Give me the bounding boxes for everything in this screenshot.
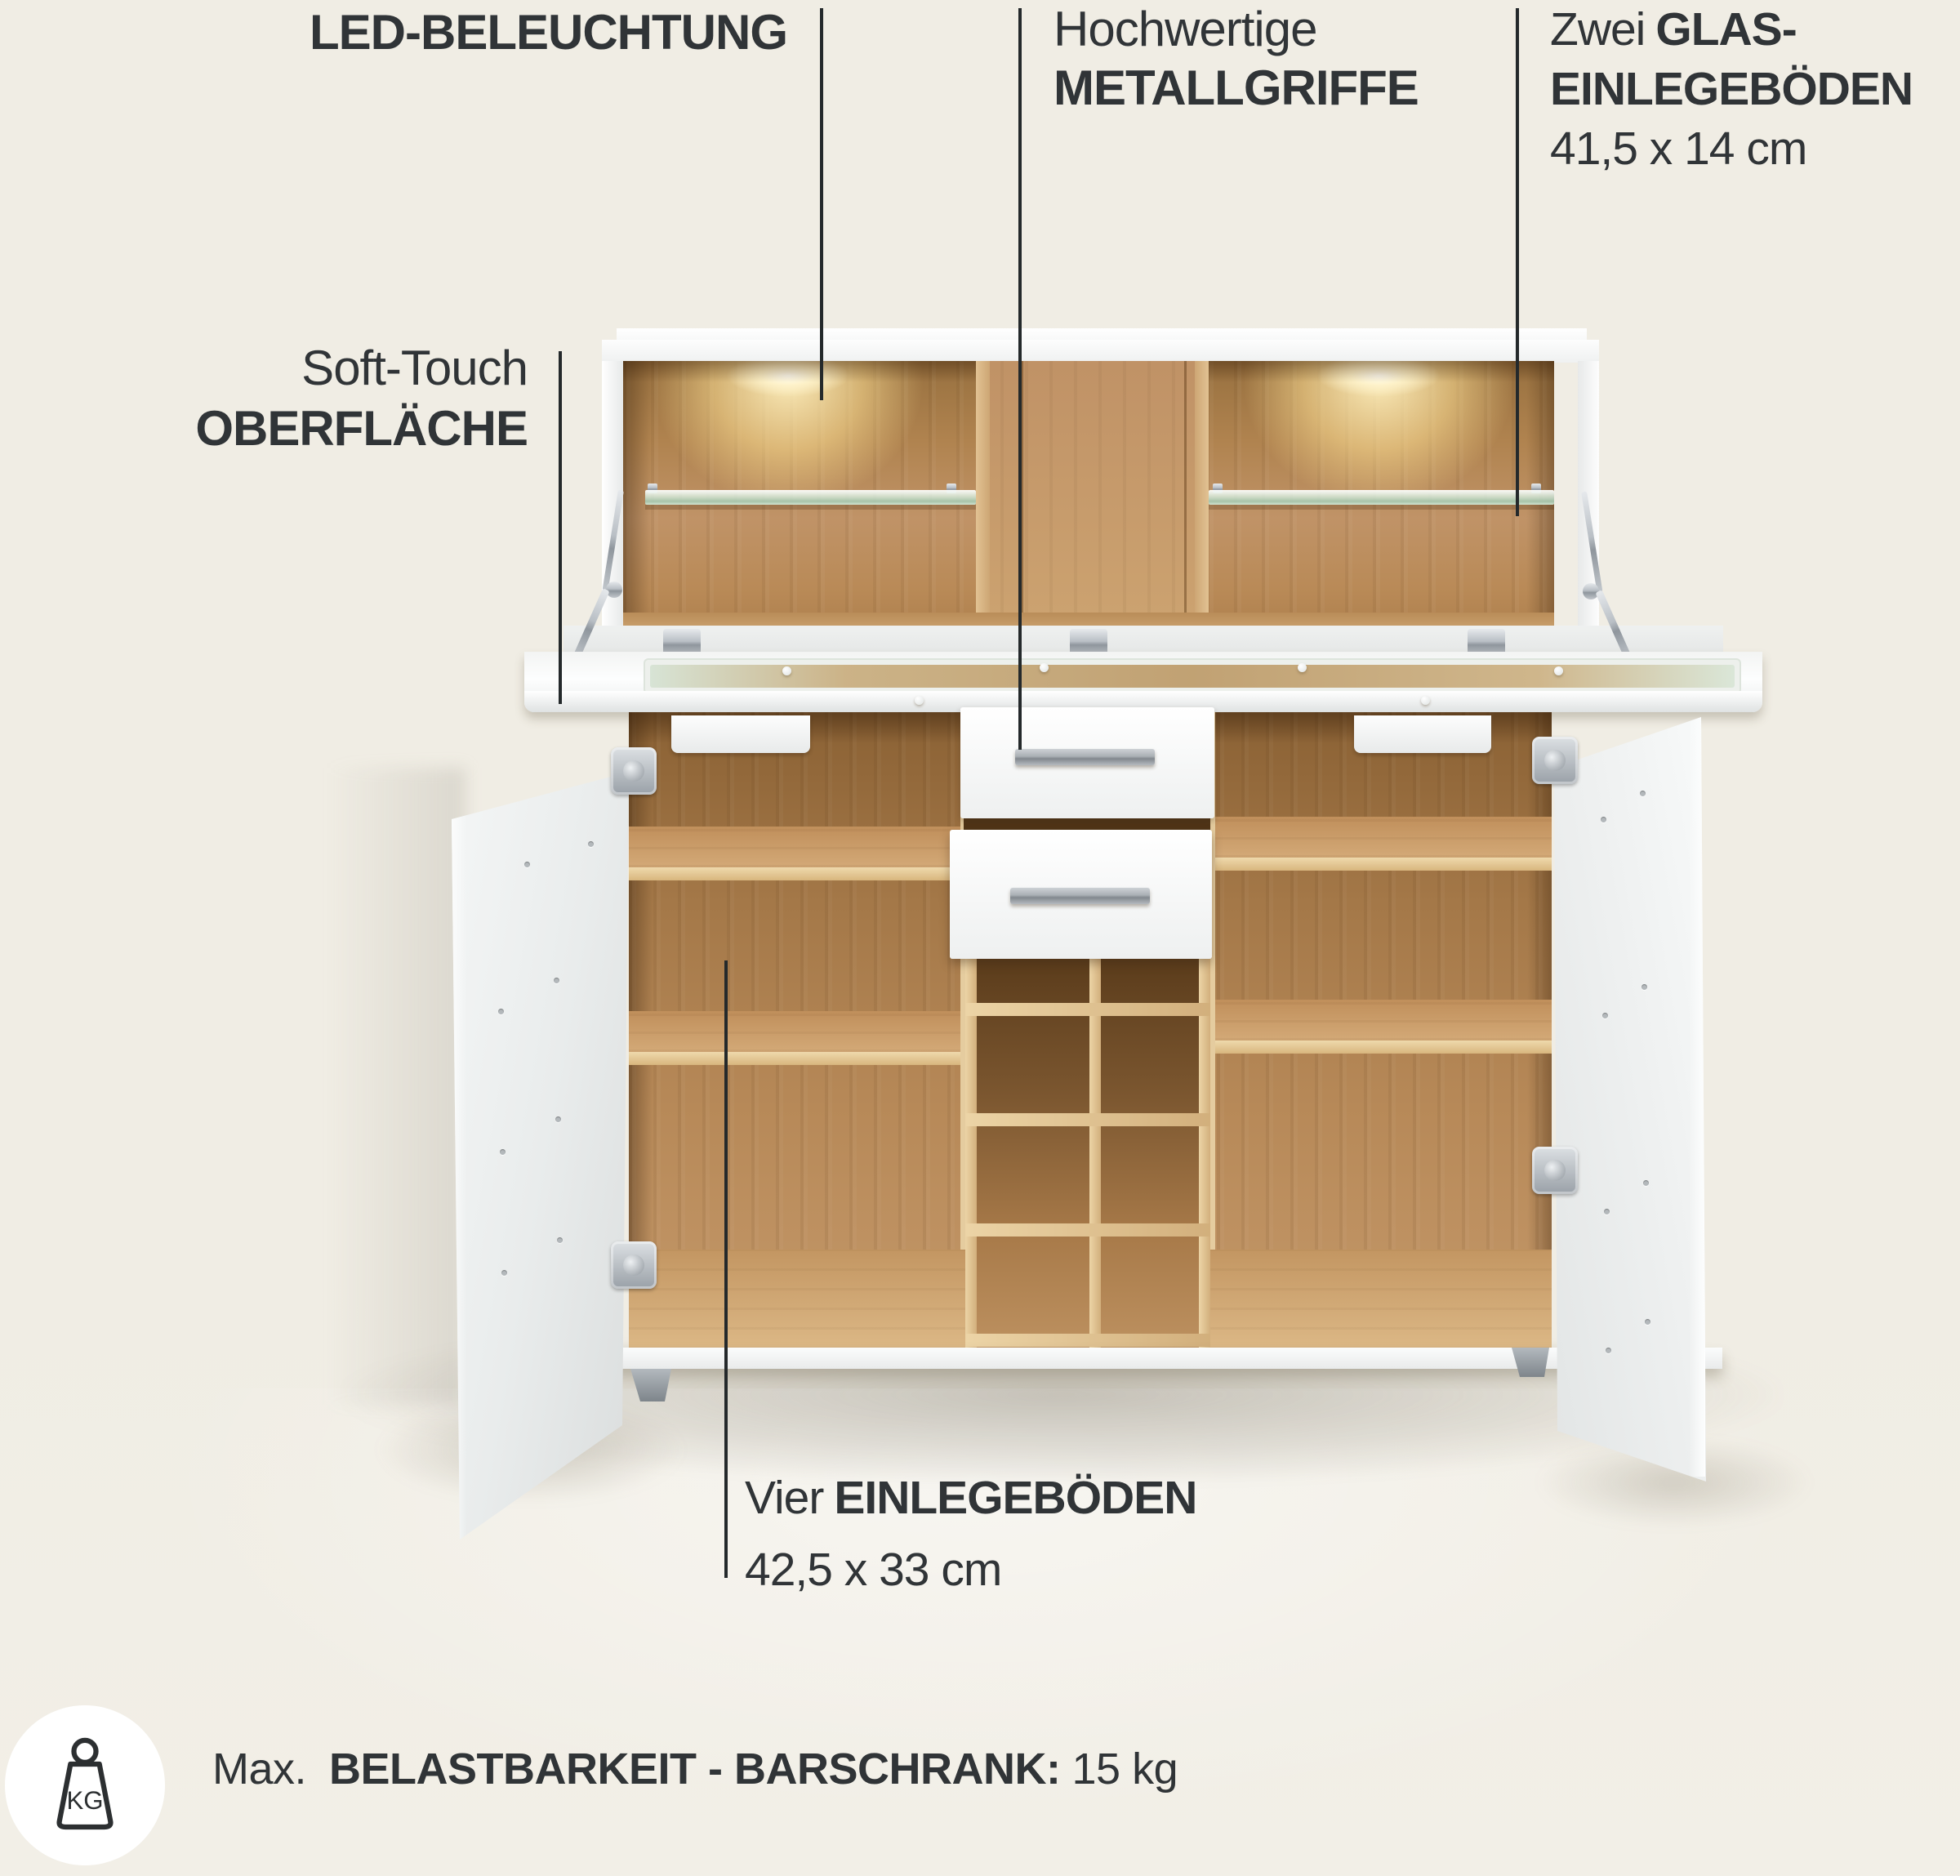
hinge-cup [623,1254,644,1276]
shelf-surface [1215,1000,1552,1040]
flap-knob [1554,666,1563,675]
screw-hole [501,1270,507,1276]
flap-knob [915,696,924,705]
callout-glass-label1: GLAS- [1655,3,1796,56]
hinge-cup [623,760,644,782]
hutch-center-partition [976,361,1209,647]
callout-handles-intro: Hochwertige [1053,0,1419,59]
callout-shelves-line1: VierEINLEGEBÖDEN [745,1462,1196,1534]
screw-hole [554,978,559,983]
callout-led-label: LED-BELEUCHTUNG [310,3,787,62]
drawer-handle [1015,749,1155,765]
screw-hole [1643,1180,1649,1186]
screw-hole [498,1009,504,1014]
callout-glass-line1: ZweiGLAS- [1550,0,1913,60]
screw-hole [1645,1319,1650,1325]
hutch-top-slab [602,340,1599,363]
door-hinge [1532,737,1578,784]
screw-hole [1602,1013,1608,1018]
max-load-caption: Max.BELASTBARKEIT - BARSCHRANK:15 kg [212,1745,1178,1794]
wine-rack-rail [965,1223,1210,1237]
screw-hole [1641,984,1647,990]
flap-knob [1421,696,1430,705]
callout-handles: Hochwertige METALLGRIFFE [1053,0,1419,118]
shelf-surface [629,827,960,867]
drawer-runner-cover [1354,715,1491,753]
callout-handles-label: METALLGRIFFE [1053,59,1419,118]
drawer-runner-cover [671,715,810,753]
screw-hole [557,1237,563,1243]
flap-glass-inlay [644,658,1741,694]
callout-glass-intro: Zwei [1550,3,1645,56]
max-load-label: BELASTBARKEIT - BARSCHRANK: [329,1745,1060,1794]
glass-shelf-right [1209,490,1554,505]
right-door [1552,711,1708,1486]
screw-hole [555,1116,561,1122]
callout-surface: Soft-Touch OBERFLÄCHE [195,338,528,459]
lid-stay-joint [606,582,622,598]
shelf-surface [1215,817,1552,858]
wine-rack-rail [965,1334,1210,1347]
callout-line-shelves [724,960,728,1578]
wall-shade-left [327,768,465,1405]
callout-glass-label2: EINLEGEBÖDEN [1550,60,1913,119]
hutch-interior [623,361,1554,647]
right-door-edge-face [1689,717,1705,1477]
infographic-canvas: LED-BELEUCHTUNG Hochwertige METALLGRIFFE… [0,0,1960,1876]
wine-rack-rail [965,1003,1210,1016]
shelf-front-edge [629,1052,960,1065]
wine-rack-rail [965,1113,1210,1126]
glass-shelf-left [645,490,976,505]
flap-knob [1040,663,1049,672]
screw-hole [500,1149,506,1155]
flap-knob [782,666,791,675]
flap-glass-pane [650,665,1735,688]
screw-hole [1640,791,1646,796]
drawer-handle [1010,888,1150,904]
callout-line-handles [1018,8,1022,750]
callout-shelves-size: 42,5 x 33 cm [745,1534,1196,1606]
kg-badge: KG [5,1705,165,1865]
door-hinge [611,1241,657,1289]
callout-led: LED-BELEUCHTUNG [310,3,787,62]
callout-surface-intro: Soft-Touch [195,338,528,399]
partition-front-edge [1195,361,1209,647]
shelf-surface [629,1011,960,1052]
glass-shelf-shadow [645,505,976,510]
screw-hole [588,841,594,847]
callout-shelves-intro: Vier [745,1472,823,1524]
partition-seam [1184,361,1187,647]
hinge-cup [1544,750,1566,771]
kg-weight-icon: KG [42,1732,127,1838]
callout-shelves: VierEINLEGEBÖDEN 42,5 x 33 cm [745,1462,1196,1606]
callout-shelves-label: EINLEGEBÖDEN [834,1472,1196,1524]
shelf-front-edge [629,867,960,880]
wine-rack [965,943,1210,1349]
callout-line-surface [559,351,562,704]
max-load-prefix: Max. [212,1745,306,1794]
drawer-gap [964,818,1210,830]
door-hinge [611,747,657,795]
callout-glass-size: 41,5 x 14 cm [1550,119,1913,179]
screw-hole [1604,1209,1610,1214]
max-load-value: 15 kg [1072,1745,1178,1794]
left-door [449,764,633,1544]
door-hinge [1532,1147,1578,1194]
partition-front-edge [976,361,990,647]
shelf-front-edge [1215,1040,1552,1054]
screw-hole [524,862,530,867]
shelf-front-edge [1215,858,1552,871]
kg-icon-label: KG [66,1786,103,1815]
glass-shelf-shadow [1209,505,1554,510]
callout-line-glass-shelves [1516,8,1519,516]
flap-knob [1298,663,1307,672]
callout-surface-label: OBERFLÄCHE [195,399,528,459]
hinge-cup [1544,1160,1566,1181]
screw-hole [1606,1348,1611,1353]
callout-line-led [820,8,823,400]
screw-hole [1601,817,1606,822]
callout-glass-shelves: ZweiGLAS- EINLEGEBÖDEN 41,5 x 14 cm [1550,0,1913,179]
